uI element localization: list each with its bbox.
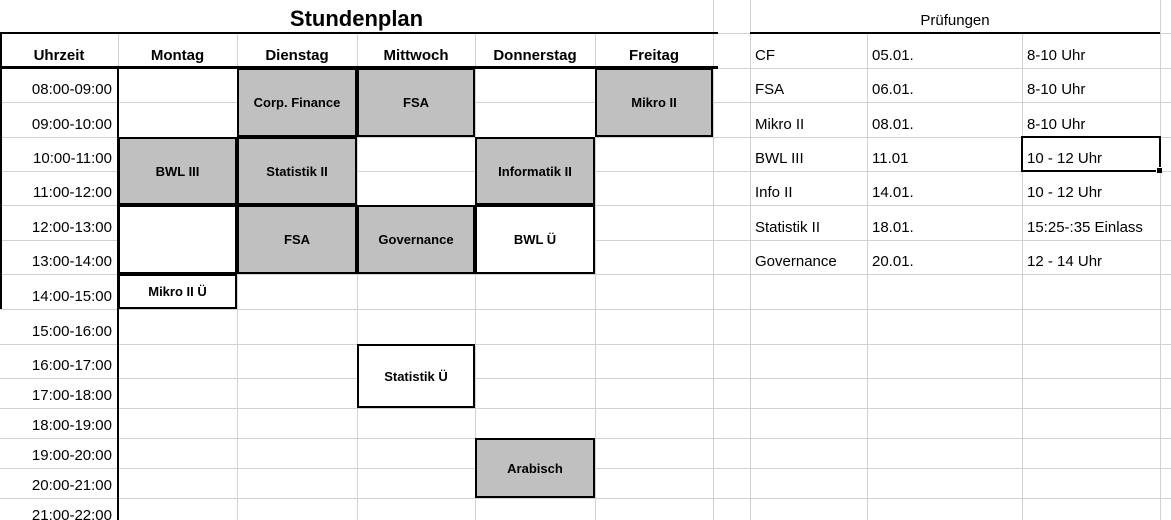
course-block-statistik-ii[interactable]: Statistik II — [237, 137, 357, 205]
time-slot-label[interactable]: 16:00-17:00 — [0, 344, 112, 378]
time-slot-label[interactable]: 17:00-18:00 — [0, 378, 112, 408]
timetable-title-cell[interactable]: Stundenplan — [0, 0, 713, 33]
gridline — [0, 408, 1171, 409]
day-header-mittwoch[interactable]: Mittwoch — [357, 33, 475, 68]
course-block-informatik-ii[interactable]: Informatik II — [475, 137, 595, 205]
course-block-fsa[interactable]: FSA — [357, 68, 475, 137]
course-block-bwl-u[interactable]: BWL Ü — [475, 205, 595, 274]
time-slot-label[interactable]: 10:00-11:00 — [0, 137, 112, 171]
time-slot-label[interactable]: 14:00-15:00 — [0, 274, 112, 309]
col-header-uhrzeit[interactable]: Uhrzeit — [0, 33, 118, 68]
exam-date-cell[interactable]: 18.01. — [867, 205, 1022, 240]
course-block-bwl-iii[interactable]: BWL III — [118, 137, 237, 205]
exam-time-cell[interactable]: 8-10 Uhr — [1022, 33, 1160, 68]
exam-date-cell[interactable]: 14.01. — [867, 171, 1022, 205]
selected-cell-outline — [1021, 136, 1161, 172]
course-block-governance[interactable]: Governance — [357, 205, 475, 274]
time-slot-label[interactable]: 20:00-21:00 — [0, 468, 112, 498]
course-block-statistik-u[interactable]: Statistik Ü — [357, 344, 475, 408]
exam-date-cell[interactable]: 11.01 — [867, 137, 1022, 171]
exam-date-cell[interactable]: 06.01. — [867, 68, 1022, 102]
exam-course-cell[interactable]: FSA — [750, 68, 867, 102]
time-slot-label[interactable]: 18:00-19:00 — [0, 408, 112, 438]
exam-course-cell[interactable]: Info II — [750, 171, 867, 205]
exams-title-cell[interactable]: Prüfungen — [750, 0, 1160, 33]
exam-date-cell[interactable]: 05.01. — [867, 33, 1022, 68]
exam-time-cell[interactable]: 8-10 Uhr — [1022, 68, 1160, 102]
course-block-mikro-ii[interactable]: Mikro II — [595, 68, 713, 137]
exam-course-cell[interactable]: BWL III — [750, 137, 867, 171]
exam-course-cell[interactable]: CF — [750, 33, 867, 68]
course-block-corp-finance[interactable]: Corp. Finance — [237, 68, 357, 137]
exam-course-cell[interactable]: Statistik II — [750, 205, 867, 240]
exam-date-cell[interactable]: 08.01. — [867, 102, 1022, 137]
time-slot-label[interactable]: 09:00-10:00 — [0, 102, 112, 137]
gridline — [0, 378, 1171, 379]
exam-date-cell[interactable]: 20.01. — [867, 240, 1022, 274]
time-slot-label[interactable]: 15:00-16:00 — [0, 309, 112, 344]
course-block-arabisch[interactable]: Arabisch — [475, 438, 595, 498]
exam-course-cell[interactable]: Mikro II — [750, 102, 867, 137]
exam-time-cell[interactable]: 10 - 12 Uhr — [1022, 171, 1160, 205]
course-block-fsa[interactable]: FSA — [237, 205, 357, 274]
day-header-donnerstag[interactable]: Donnerstag — [475, 33, 595, 68]
exam-time-cell[interactable]: 15:25-:35 Einlass — [1022, 205, 1160, 240]
spreadsheet: Stundenplan Prüfungen UhrzeitMontagDiens… — [0, 0, 1171, 520]
time-slot-label[interactable]: 12:00-13:00 — [0, 205, 112, 240]
time-slot-label[interactable]: 13:00-14:00 — [0, 240, 112, 274]
empty-course-block[interactable] — [118, 205, 237, 274]
time-slot-label[interactable]: 08:00-09:00 — [0, 68, 112, 102]
exam-time-cell[interactable]: 8-10 Uhr — [1022, 102, 1160, 137]
day-header-montag[interactable]: Montag — [118, 33, 237, 68]
day-header-dienstag[interactable]: Dienstag — [237, 33, 357, 68]
time-slot-label[interactable]: 19:00-20:00 — [0, 438, 112, 468]
exam-course-cell[interactable]: Governance — [750, 240, 867, 274]
course-block-mikro-ii-u[interactable]: Mikro II Ü — [118, 274, 237, 309]
exam-time-cell[interactable]: 12 - 14 Uhr — [1022, 240, 1160, 274]
time-slot-label[interactable]: 21:00-22:00 — [0, 498, 112, 520]
gridline — [0, 344, 1171, 345]
day-header-freitag[interactable]: Freitag — [595, 33, 713, 68]
time-slot-label[interactable]: 11:00-12:00 — [0, 171, 112, 205]
